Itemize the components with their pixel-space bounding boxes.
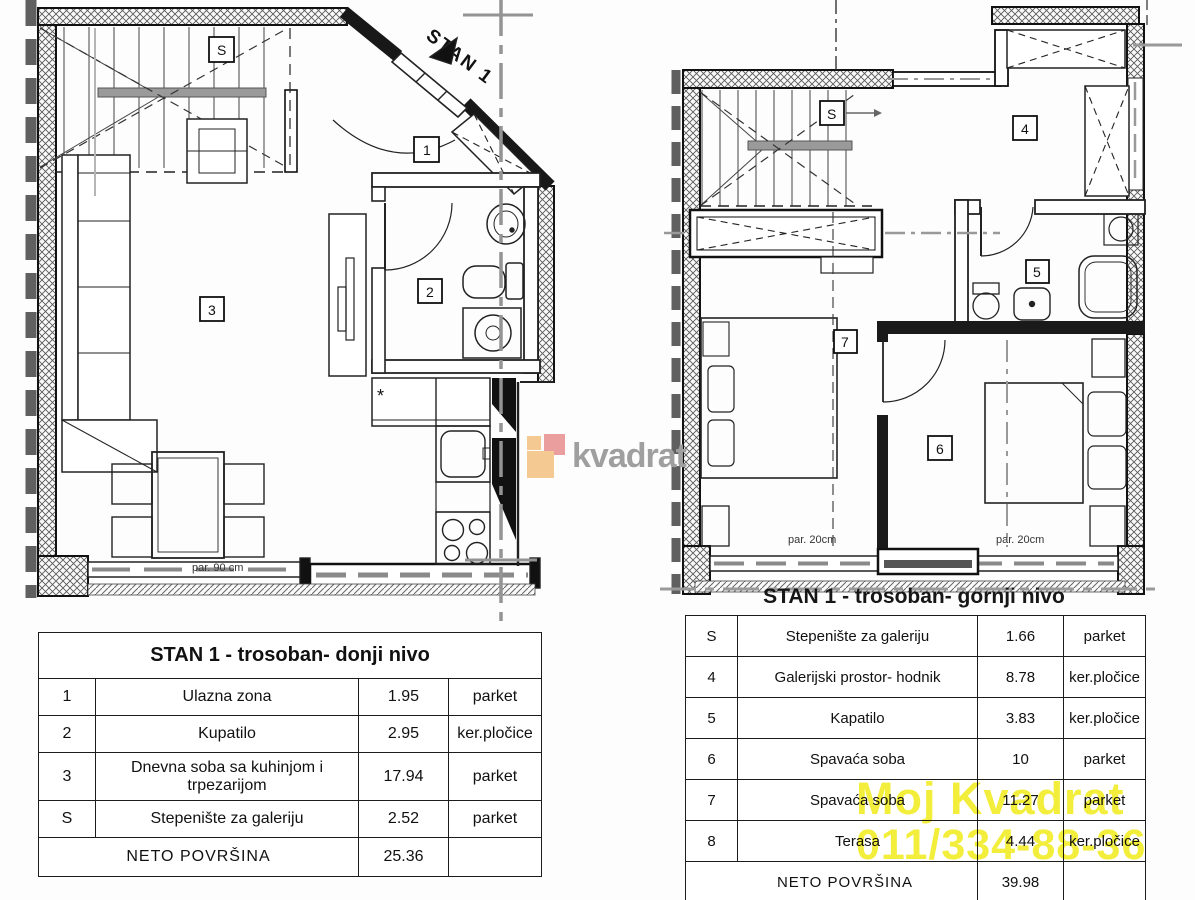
room-label-6: 6	[936, 441, 944, 457]
watermark: Moj Kvadrat 011/334-88-36	[856, 776, 1146, 868]
room-area: 1.66	[978, 616, 1064, 657]
room-number: 5	[686, 698, 738, 739]
wardrobe-strip	[690, 210, 882, 273]
room-name: Stepenište za galeriju	[738, 616, 978, 657]
parapet-note-right: par. 20cm	[996, 534, 1044, 546]
room-area: 2.95	[359, 716, 449, 753]
room-floor: ker.pločice	[449, 716, 542, 753]
room-number: 2	[39, 716, 96, 753]
room-area: 3.83	[978, 698, 1064, 739]
toilet	[463, 266, 505, 298]
room-floor: parket	[449, 679, 542, 716]
room-name: Galerijski prostor- hodnik	[738, 657, 978, 698]
room-number: 3	[39, 753, 96, 801]
kitchen-star: *	[377, 386, 384, 406]
chair	[112, 517, 152, 557]
floorplan-sheet: STAN 1	[0, 0, 1195, 900]
closet-right	[1085, 86, 1129, 196]
room-number: S	[39, 801, 96, 838]
room-number: 8	[686, 821, 738, 862]
kvadrat-logo-icon	[527, 434, 569, 480]
room-label-3: 3	[208, 302, 216, 318]
room-floor: parket	[449, 801, 542, 838]
room-label-5: 5	[1033, 264, 1041, 280]
room-area: 17.94	[359, 753, 449, 801]
stairs-lower	[40, 27, 290, 172]
upper-plan: par. 20cm par. 20cm S 4 5 6 7	[660, 0, 1182, 594]
parapet-note-left: par. 20cm	[788, 534, 836, 546]
sink	[487, 204, 525, 244]
room-area: 8.78	[978, 657, 1064, 698]
room-number: S	[686, 616, 738, 657]
room-label-2: 2	[426, 284, 434, 300]
room-name: Stepenište za galeriju	[96, 801, 359, 838]
room-floor: ker.pločice	[1064, 698, 1146, 739]
room-floor: parket	[449, 753, 542, 801]
room-area: 1.95	[359, 679, 449, 716]
table-title-row: STAN 1 - trosoban- donji nivo	[39, 633, 542, 679]
table-row: S Stepenište za galeriju 1.66 parket	[686, 616, 1146, 657]
table-row: S Stepenište za galeriju 2.52 parket	[39, 801, 542, 838]
lower-level-area-table: STAN 1 - trosoban- donji nivo 1 Ulazna z…	[38, 632, 542, 877]
kitchen: *	[372, 378, 516, 564]
parapet-note-lower: par. 90 cm	[192, 562, 243, 574]
sofa	[62, 155, 157, 472]
room-floor: parket	[1064, 616, 1146, 657]
floorplan-drawing: STAN 1	[0, 0, 1195, 632]
lower-table-title: STAN 1 - trosoban- donji nivo	[39, 633, 542, 679]
stair-handrail	[98, 88, 266, 97]
upper-walls	[683, 7, 1144, 594]
room-label-4: 4	[1021, 121, 1029, 137]
empty-cell	[449, 838, 542, 877]
stove	[436, 512, 490, 564]
table-row: 2 Kupatilo 2.95 ker.pločice	[39, 716, 542, 753]
watermark-phone: 011/334-88-36	[856, 823, 1146, 868]
watermark-brand: Moj Kvadrat	[856, 776, 1146, 823]
chair	[224, 464, 264, 504]
bathroom-lower	[372, 173, 540, 373]
tv-unit	[329, 214, 366, 376]
upper-room-labels: S 4 5 6 7	[820, 101, 1049, 460]
room-name: Dnevna soba sa kuhinjom i trpezarijom	[96, 753, 359, 801]
room-label-s: S	[217, 42, 226, 58]
total-label: NETO POVRŠINA	[39, 838, 359, 877]
bed-room7	[701, 318, 837, 546]
room-number: 1	[39, 679, 96, 716]
table-row: 1 Ulazna zona 1.95 parket	[39, 679, 542, 716]
upper-plan-caption: STAN 1 - trosoban- gornji nivo	[668, 585, 1160, 609]
lower-plan: STAN 1	[31, 0, 554, 598]
gallery-furniture	[187, 119, 247, 183]
kvadrat-logo: kvadrat	[527, 434, 686, 480]
stairs-upper	[700, 90, 882, 206]
room-number: 6	[686, 739, 738, 780]
closet-top	[1007, 30, 1125, 68]
table-row: 4 Galerijski prostor- hodnik 8.78 ker.pl…	[686, 657, 1146, 698]
shaft	[492, 378, 516, 432]
total-area: 25.36	[359, 838, 449, 877]
table-row: 5 Kapatilo 3.83 ker.pločice	[686, 698, 1146, 739]
bathroom-upper	[877, 200, 1145, 334]
table-total-row: NETO POVRŠINA 25.36	[39, 838, 542, 877]
room-label-s: S	[827, 106, 836, 122]
room-name: Ulazna zona	[96, 679, 359, 716]
chair	[224, 517, 264, 557]
room-name: Kupatilo	[96, 716, 359, 753]
room-floor: ker.pločice	[1064, 657, 1146, 698]
room-label-1: 1	[423, 142, 431, 158]
room-number: 7	[686, 780, 738, 821]
room-number: 4	[686, 657, 738, 698]
room-area: 2.52	[359, 801, 449, 838]
room-label-7: 7	[841, 334, 849, 350]
kvadrat-logo-text: kvadrat	[572, 434, 686, 478]
stair-handrail	[748, 141, 852, 150]
room-name: Kapatilo	[738, 698, 978, 739]
table-row: 3 Dnevna soba sa kuhinjom i trpezarijom …	[39, 753, 542, 801]
